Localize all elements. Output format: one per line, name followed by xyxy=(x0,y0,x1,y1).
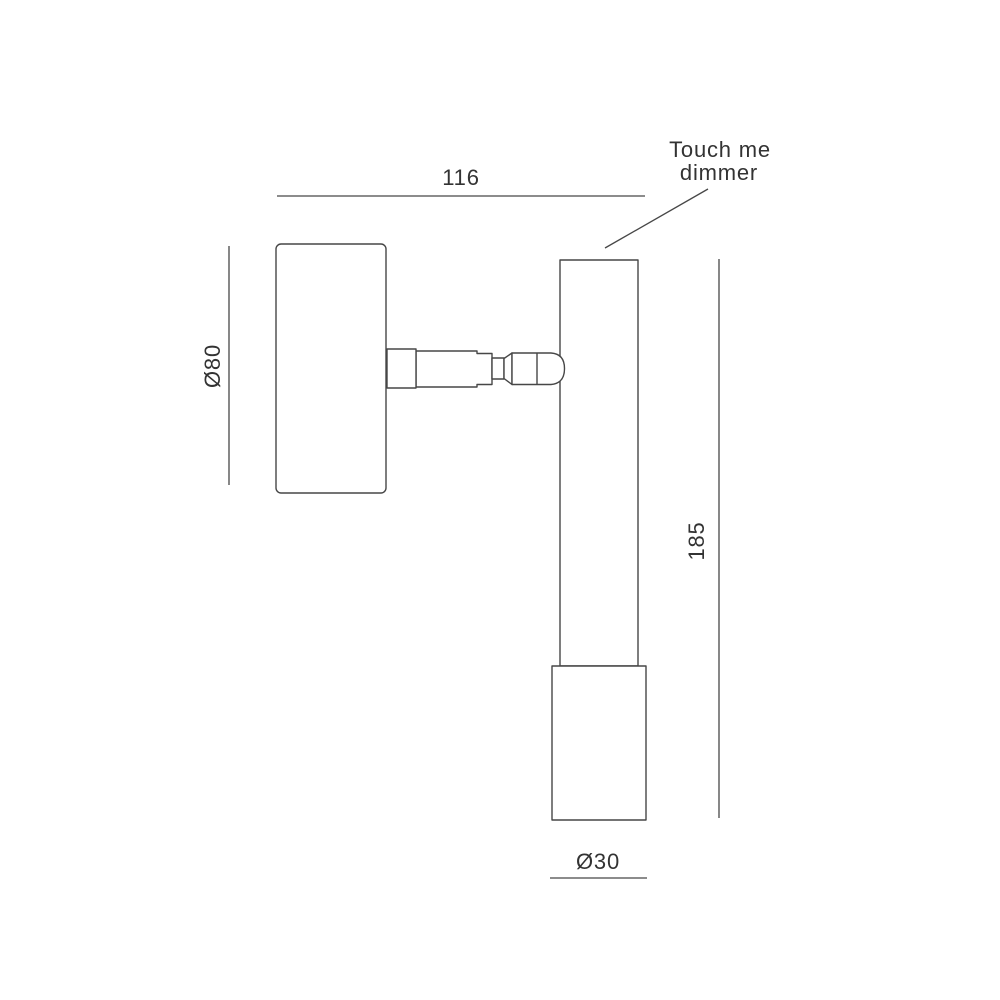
annotation-leader-line xyxy=(605,189,708,248)
body-height-dimension-label: 185 xyxy=(684,521,709,560)
lamp-outline-group xyxy=(276,244,646,820)
technical-drawing-page: 116 Ø80 185 Ø30 Touch me dimmer xyxy=(0,0,1000,1000)
head-diameter-dimension-label: Ø80 xyxy=(200,344,225,388)
annotation-text-line2: dimmer xyxy=(680,160,758,185)
base-diameter-dimension-label: Ø30 xyxy=(576,849,620,874)
arm-swivel-neck xyxy=(492,358,504,379)
annotation-text-line1: Touch me xyxy=(669,137,771,162)
lamp-head-shade xyxy=(276,244,386,493)
arm-head-collar xyxy=(387,349,416,388)
lamp-body-tube xyxy=(560,260,638,666)
width-dimension-label: 116 xyxy=(442,165,479,190)
arm-taper-cone xyxy=(504,353,512,385)
arm-wall-knob xyxy=(512,353,565,385)
arm-barrel xyxy=(416,351,492,387)
lamp-base-cylinder xyxy=(552,666,646,820)
lamp-dimension-diagram: 116 Ø80 185 Ø30 Touch me dimmer xyxy=(0,0,1000,1000)
